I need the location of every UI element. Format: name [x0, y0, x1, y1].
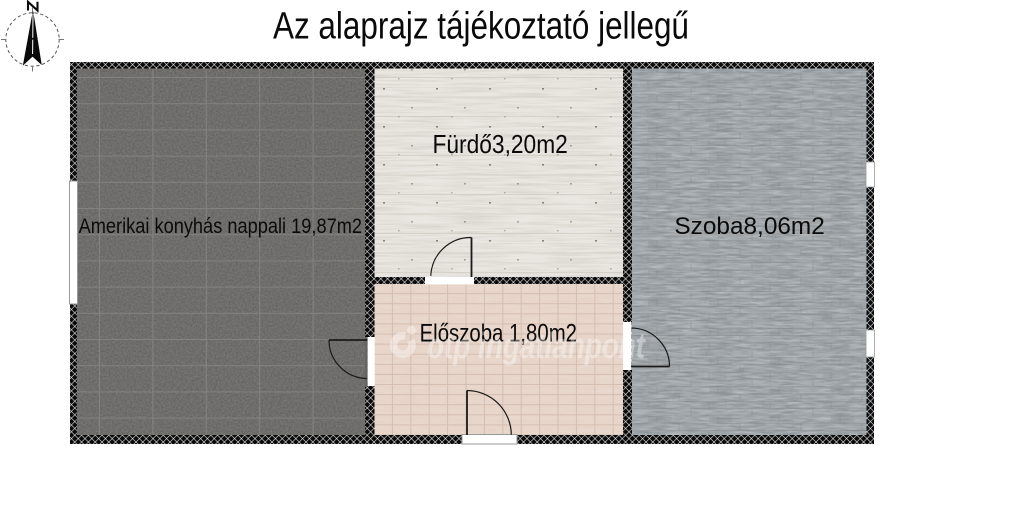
svg-text:Az alaprajz tájékoztató jelleg: Az alaprajz tájékoztató jellegű: [273, 6, 689, 48]
svg-text:otp ingatlanpont: otp ingatlanpont: [427, 325, 647, 366]
svg-text:Fürdő3,20m2: Fürdő3,20m2: [433, 129, 568, 159]
svg-text:Amerikai konyhás nappali 19,87: Amerikai konyhás nappali 19,87m2: [79, 215, 362, 238]
svg-text:Szoba8,06m2: Szoba8,06m2: [674, 213, 824, 240]
